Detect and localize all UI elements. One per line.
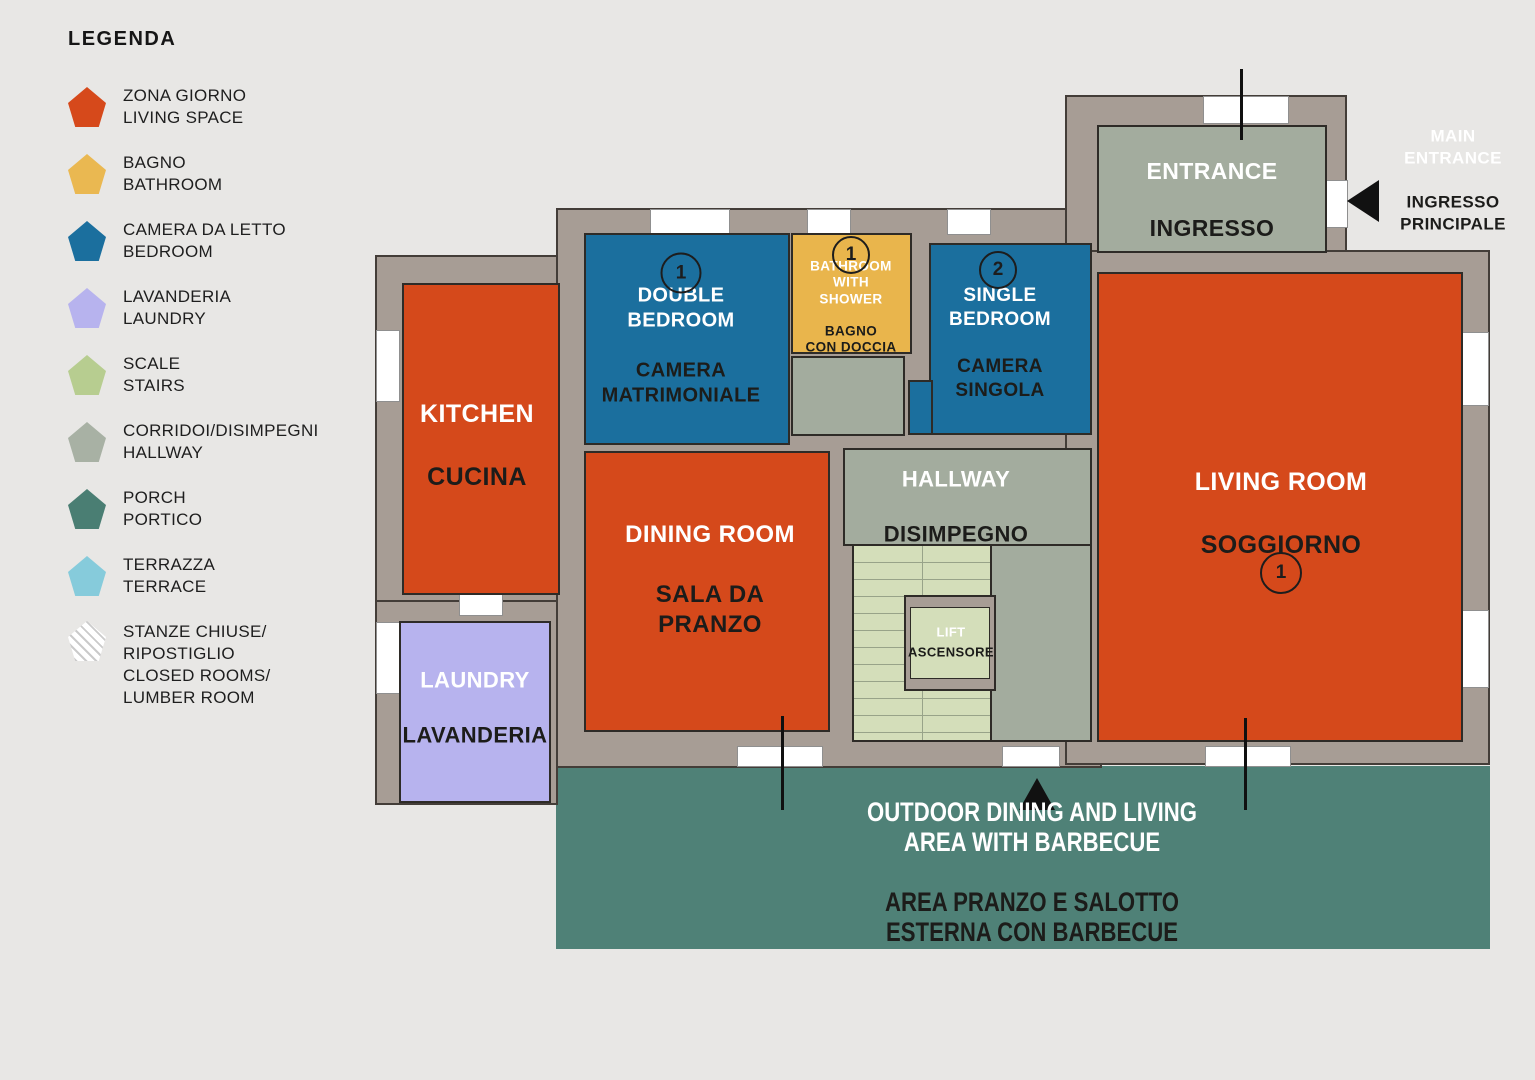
label-dining-it: SALA DA PRANZO [625,580,795,640]
window-opening [1462,610,1489,688]
legend-item-stairs: SCALE STAIRS [68,353,378,397]
terrace-swatch-icon [68,556,106,596]
legend-item-bedroom: CAMERA DA LETTO BEDROOM [68,219,378,263]
legend-item-bathroom: BAGNO BATHROOM [68,152,378,196]
label-double-bedroom-it: CAMERA MATRIMONIALE [602,359,761,409]
label-outdoor-en: OUTDOOR DINING AND LIVING AREA WITH BARB… [867,797,1197,857]
badge-double-bedroom: 1 [661,253,702,294]
label-single-bedroom-en: SINGLE BEDROOM [949,284,1051,332]
window-opening [1462,332,1489,406]
legend-item-label: SCALE STAIRS [123,353,185,397]
label-laundry: LAUNDRY LAVANDERIA [403,638,548,776]
leader-line [1244,718,1247,810]
label-outdoor: OUTDOOR DINING AND LIVING AREA WITH BARB… [831,767,1234,977]
window-opening [947,209,991,235]
label-hallway-en: HALLWAY [884,465,1029,493]
closed-rooms-swatch-icon [68,621,106,661]
door-opening [737,746,823,767]
legend-item-laundry: LAVANDERIA LAUNDRY [68,286,378,330]
label-living-en: LIVING ROOM [1195,467,1367,498]
window-opening [807,209,851,235]
stairs-swatch-icon [68,355,106,395]
badge-bathroom: 1 [832,236,870,274]
legend-item-closed-rooms: STANZE CHIUSE/ RIPOSTIGLIO CLOSED ROOMS/… [68,621,378,709]
legend-item-label: CAMERA DA LETTO BEDROOM [123,219,286,263]
label-main-entrance-it: INGRESSO PRINCIPALE [1400,192,1506,236]
label-dining-en: DINING ROOM [625,520,795,550]
label-main-entrance: MAIN ENTRANCE INGRESSO PRINCIPALE [1400,104,1506,259]
legend-item-terrace: TERRAZZA TERRACE [68,554,378,598]
label-entrance-it: INGRESSO [1147,214,1278,243]
window-opening [376,330,400,402]
legend-item-living-space: ZONA GIORNO LIVING SPACE [68,85,378,129]
label-laundry-it: LAVANDERIA [403,721,548,749]
window-opening [376,622,400,694]
label-hallway: HALLWAY DISIMPEGNO [884,437,1029,575]
hallway-swatch-icon [68,422,106,462]
label-lift-it: ASCENSORE [908,642,994,662]
label-single-bedroom-it: CAMERA SINGOLA [949,355,1051,403]
label-bathroom-it: BAGNO CON DOCCIA [806,323,897,355]
label-lift: LIFT ASCENSORE [908,623,994,662]
legend-item-label: PORCH PORTICO [123,487,202,531]
main-entrance-arrow-icon [1347,180,1379,222]
label-kitchen-en: KITCHEN [420,399,534,430]
main-entrance-door-opening [1325,180,1348,228]
badge-living: 1 [1260,552,1302,594]
badge-single-bedroom: 2 [979,251,1017,289]
legend-item-label: LAVANDERIA LAUNDRY [123,286,231,330]
leader-line [781,716,784,810]
legend-item-label: STANZE CHIUSE/ RIPOSTIGLIO CLOSED ROOMS/… [123,621,270,709]
bathroom-swatch-icon [68,154,106,194]
label-outdoor-it: AREA PRANZO E SALOTTO ESTERNA CON BARBEC… [867,887,1197,947]
label-main-entrance-en: MAIN ENTRANCE [1400,126,1506,170]
label-hallway-it: DISIMPEGNO [884,520,1029,548]
label-kitchen-it: CUCINA [420,462,534,493]
legend-item-label: ZONA GIORNO LIVING SPACE [123,85,246,129]
label-entrance: ENTRANCE INGRESSO [1147,128,1278,272]
window-opening [650,209,730,235]
legend-item-hallway: CORRIDOI/DISIMPEGNI HALLWAY [68,420,378,464]
door-opening [1002,746,1060,767]
legend: LEGENDA ZONA GIORNO LIVING SPACE BAGNO B… [68,28,378,732]
legend-title: LEGENDA [68,28,378,51]
label-dining: DINING ROOM SALA DA PRANZO [625,490,795,670]
legend-item-label: TERRAZZA TERRACE [123,554,215,598]
label-entrance-en: ENTRANCE [1147,157,1278,186]
room-single-bedroom-nook [908,380,933,435]
label-kitchen: KITCHEN CUCINA [420,368,534,524]
laundry-swatch-icon [68,288,106,328]
legend-item-label: CORRIDOI/DISIMPEGNI HALLWAY [123,420,319,464]
living-space-swatch-icon [68,87,106,127]
door-opening [1205,746,1291,767]
legend-item-porch: PORCH PORTICO [68,487,378,531]
bedroom-swatch-icon [68,221,106,261]
label-lift-en: LIFT [908,623,994,643]
floor-plan-canvas: 1 1 2 1 KITCHEN CUCINA LAUNDRY LAVANDERI… [0,0,1535,1080]
porch-swatch-icon [68,489,106,529]
window-opening [1203,96,1289,124]
legend-item-label: BAGNO BATHROOM [123,152,222,196]
label-laundry-en: LAUNDRY [403,666,548,694]
